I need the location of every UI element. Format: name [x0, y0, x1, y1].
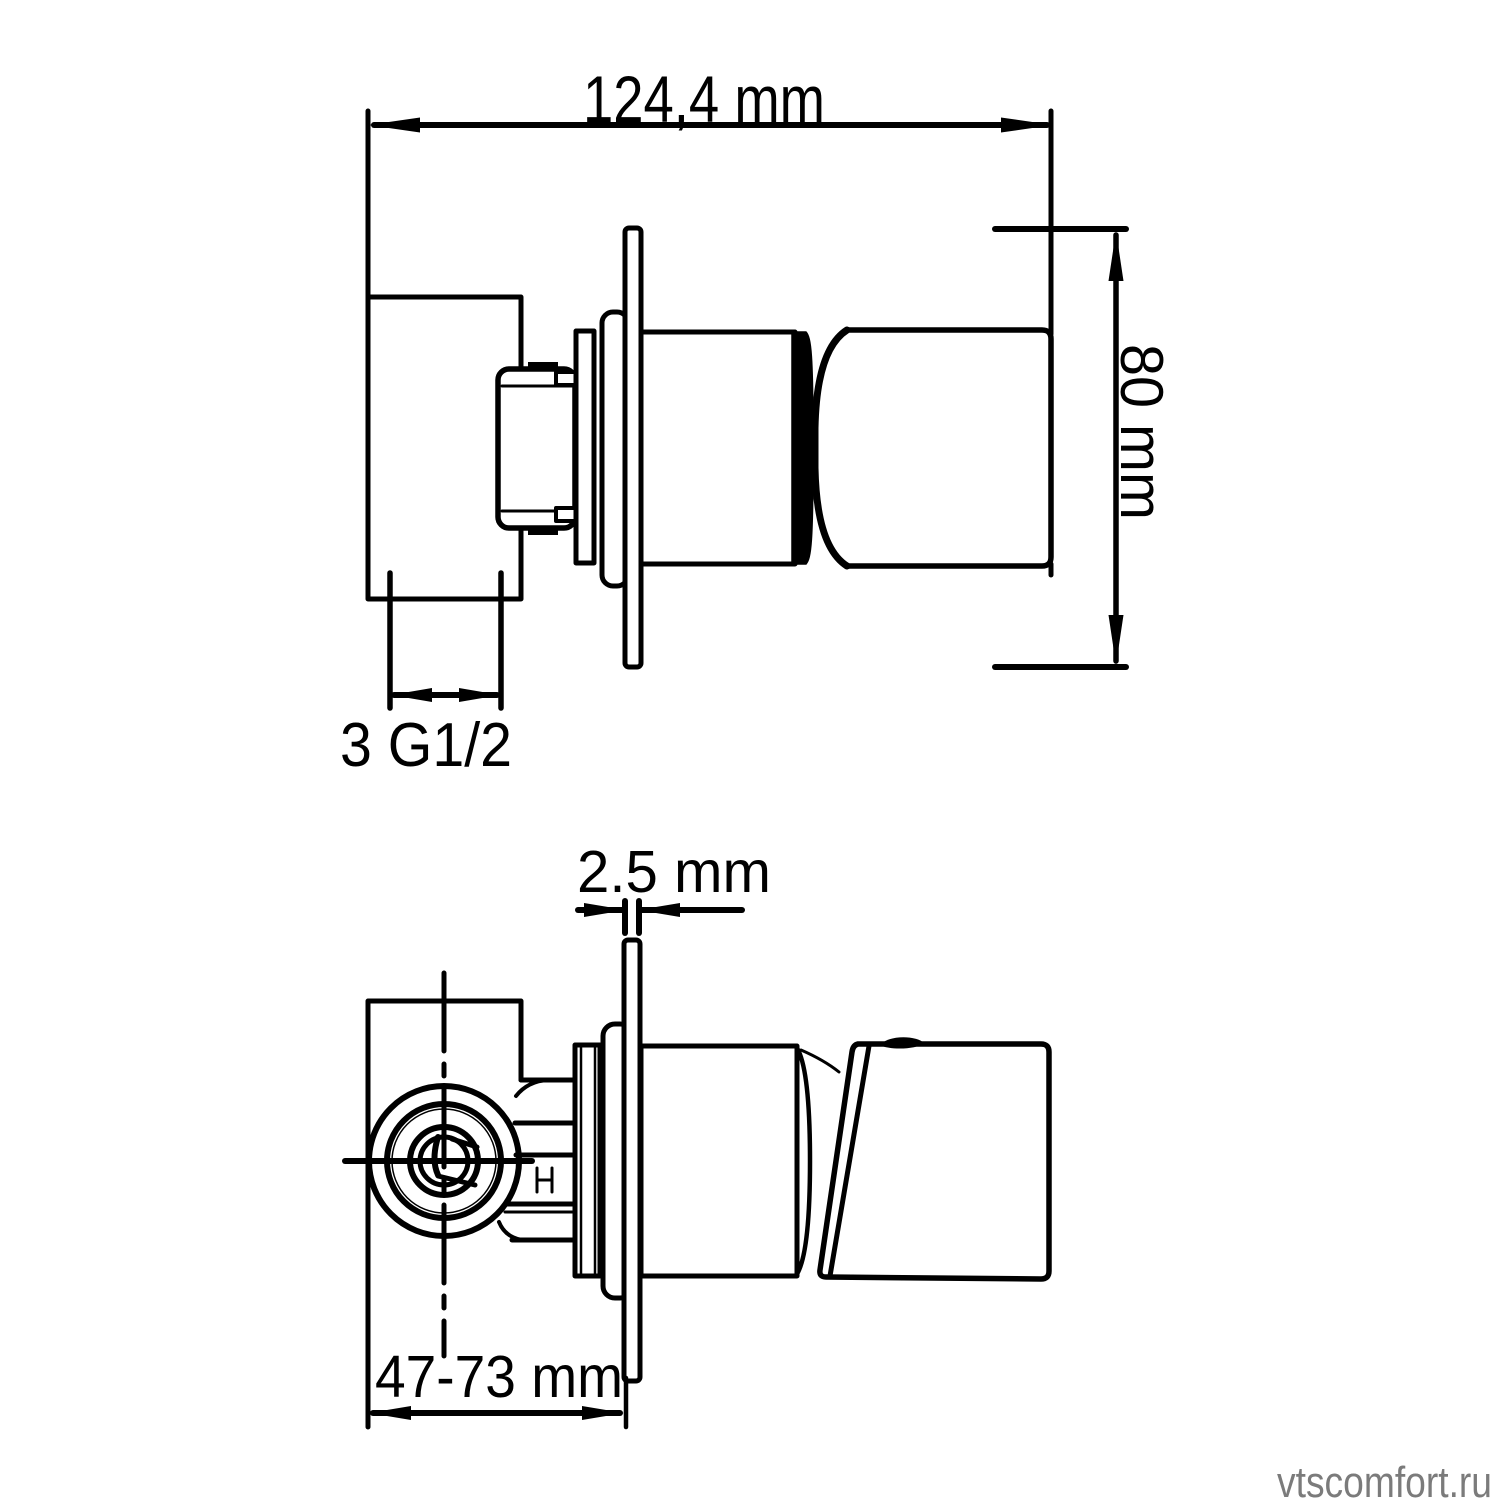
svg-text:80 mm: 80 mm [1108, 344, 1175, 520]
svg-text:vtscomfort.ru: vtscomfort.ru [1277, 1458, 1492, 1504]
svg-text:47-73 mm: 47-73 mm [375, 1344, 623, 1410]
svg-text:2.5 mm: 2.5 mm [577, 839, 771, 905]
svg-text:3 G1/2: 3 G1/2 [340, 711, 512, 780]
